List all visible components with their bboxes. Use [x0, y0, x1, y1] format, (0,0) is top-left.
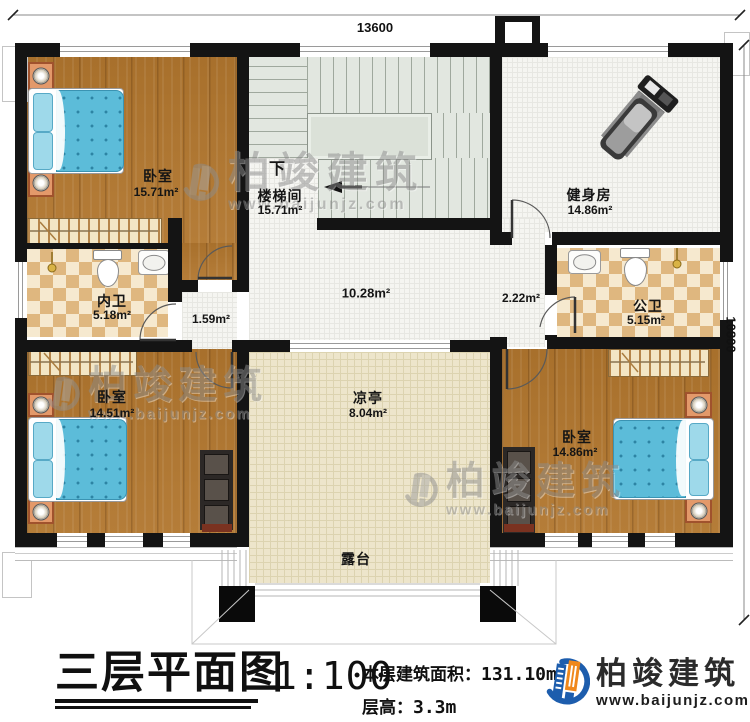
window-pier [628, 533, 645, 547]
nightstand [685, 392, 712, 418]
terrace-pillar [219, 586, 255, 622]
corridor-area: 2.22m² [502, 291, 540, 305]
window [548, 43, 668, 57]
window [545, 533, 675, 547]
lamp-icon [33, 68, 50, 85]
nightstand [685, 498, 712, 523]
sink-icon [138, 250, 170, 275]
pillow [689, 460, 709, 496]
wall-pavilion-left [237, 349, 249, 547]
floor-height-row: 层高：3.3m [362, 693, 456, 718]
floor-height-value: 3.3m [413, 697, 456, 718]
window-pavilion [290, 340, 450, 352]
window [15, 262, 27, 318]
chimney-flue [505, 22, 532, 43]
stair-treads-top [307, 57, 490, 113]
wall-bedroom-stair [237, 43, 249, 292]
room-label-pavilion: 凉亭 [353, 388, 383, 408]
bed-blanket [56, 90, 124, 172]
closet [608, 349, 709, 377]
dimension-height: 10800 [724, 305, 739, 365]
brand-name: 柏竣建筑 [596, 658, 740, 689]
wall-bath-public-left [545, 245, 557, 295]
room-area-bedroom-tl: 15.71m² [134, 185, 179, 199]
lamp-icon [690, 397, 707, 414]
room-label-bedroom-bl: 卧室 [97, 387, 127, 407]
nightstand [28, 62, 54, 90]
wardrobe [200, 450, 233, 530]
wall-bath-public-left [545, 335, 557, 340]
wall-gym-bottom [552, 232, 720, 245]
wall-bedroom-tl-door [180, 280, 198, 292]
vestibule-area: 1.59m² [192, 312, 230, 326]
floor-plan-page: 13600 10800 卧室 15.71m² 下 楼梯间 15.71m² 健身房… [0, 0, 750, 722]
nightstand [28, 500, 54, 524]
room-area-stairwell: 15.71m² [258, 203, 303, 217]
wardrobe-base [202, 524, 232, 532]
hall-area: 10.28m² [342, 286, 390, 301]
stair-landing [307, 113, 432, 160]
terrace-pillar [480, 586, 516, 622]
brand-logo-icon [540, 652, 590, 712]
wardrobe-base [504, 524, 534, 532]
lamp-icon [33, 504, 50, 521]
closet [27, 218, 162, 245]
stair-treads-right [430, 113, 490, 158]
wall-bath-inner-top [15, 243, 168, 249]
window-pier [143, 533, 163, 547]
sink-icon [568, 250, 601, 274]
closet [28, 349, 137, 376]
dimension-width: 13600 [340, 20, 410, 35]
stair-treads-bottom [318, 158, 490, 218]
room-area-bedroom-bl: 14.51m² [90, 406, 135, 420]
lamp-icon [33, 397, 50, 414]
bed-sheet-fold [676, 420, 689, 496]
room-area-bath-inner: 5.18m² [93, 308, 131, 322]
terrace-sill-right [490, 547, 733, 561]
wall-bedroom-tl-door [232, 280, 242, 292]
window-pier [578, 533, 592, 547]
brand-website: www.baijunjz.com [596, 692, 749, 709]
wall-bedroom-bl-top [15, 340, 192, 352]
floor-area-label: 本层建筑面积： [362, 665, 481, 684]
plan-title: 三层平面图 [55, 651, 285, 695]
wall-stair-bottom [317, 218, 502, 230]
stair-down-label: 下 [269, 155, 285, 179]
room-label-bedroom-tl: 卧室 [143, 166, 173, 186]
wall-hall-bottom [249, 340, 290, 352]
wardrobe [503, 447, 535, 533]
nightstand [28, 393, 54, 417]
room-area-pavilion: 8.04m² [349, 406, 387, 420]
room-label-bedroom-br: 卧室 [562, 427, 592, 447]
window [60, 43, 190, 57]
floor-area-row: 本层建筑面积：131.10m² [362, 660, 568, 685]
title-underline [55, 699, 258, 703]
pillow [33, 460, 53, 498]
pillow [33, 132, 53, 170]
room-area-gym: 14.86m² [568, 203, 613, 217]
treadmill-icon [575, 68, 690, 183]
pillow [689, 423, 709, 460]
room-label-gym: 健身房 [567, 185, 612, 205]
room-area-bedroom-br: 14.86m² [553, 445, 598, 459]
window-pier [87, 533, 105, 547]
wall-bedroom-br-top [547, 337, 720, 349]
pillow [33, 422, 53, 460]
wall-pavilion-right [490, 337, 502, 547]
lamp-icon [690, 502, 707, 519]
wall-gym-bottom [502, 232, 512, 245]
window [300, 43, 430, 57]
lamp-icon [33, 174, 50, 191]
room-area-bath-public: 5.15m² [627, 313, 665, 327]
wall-stair-gym [490, 43, 502, 245]
floor-height-label: 层高： [362, 698, 413, 717]
room-label-terrace: 露台 [341, 549, 371, 569]
window [57, 533, 190, 547]
terrace-sill-left [15, 547, 237, 561]
bedroom-tl-entry-nook-floor [180, 243, 237, 280]
bed-blanket [56, 419, 127, 500]
wall-bedroom-br-top [502, 337, 507, 349]
title-underline [55, 706, 251, 709]
pillow [33, 93, 53, 132]
wall-bath-inner-right [168, 218, 182, 302]
stair-treads-left [249, 57, 307, 158]
